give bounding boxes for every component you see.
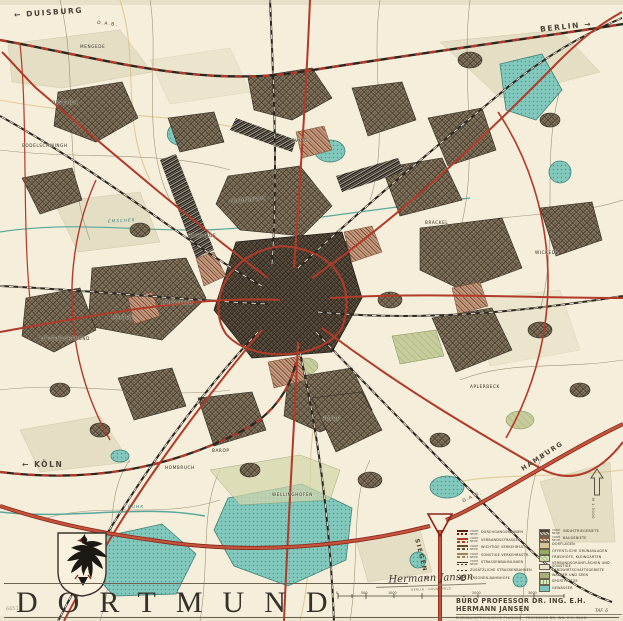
district-label: BODELSCHWINGH: [22, 143, 68, 148]
scale-tick: 0: [336, 591, 338, 595]
legend-swatch-bahnhof: [460, 575, 466, 581]
river-label-ruhr: RUHR: [128, 504, 144, 510]
map-sheet: ← DUISBURG BERLIN → ← KÖLN HAMBURG SIEGE…: [0, 0, 623, 621]
legend: VORH.NEUE DURCHGANGSBAHNEN VORH.NEUE VER…: [457, 529, 621, 592]
north-arrow: M 1:5000: [589, 468, 607, 524]
legend-label: VERBANDSSTRASSEN: [481, 539, 521, 543]
legend-swatch-strassenbahn: [457, 562, 468, 565]
district-label: MARTEN: [112, 315, 133, 320]
legend-swatch-gewaesser: [539, 585, 550, 592]
plate-number: TAF. 6: [595, 609, 608, 614]
map-artwork: [0, 0, 623, 621]
legend-swatch-nebenstrasse: [457, 553, 468, 558]
legend-column-lines: VORH.NEUE DURCHGANGSBAHNEN VORH.NEUE VER…: [457, 529, 535, 592]
legend-swatch-rail: [457, 530, 468, 535]
district-label: MENGEDE: [80, 44, 105, 49]
legend-row: ZUSÄTZLICHE STRASSENBAHNEN: [457, 567, 535, 575]
district-label: HOMBRUCH: [165, 465, 195, 470]
legend-row: VORH.NEUE WICHTIGE VERKEHRSSTR.: [457, 544, 535, 552]
legend-column-areas: VORH.NEUE INDUSTRIEGEBIETE VORH.NEUE BAU…: [539, 529, 621, 592]
district-label: HUCKARDE: [188, 233, 216, 238]
district-label: DORSTFELD: [162, 300, 193, 305]
legend-label: DORFLAGEN: [552, 543, 575, 547]
legend-swatch-hauptstrasse: [457, 545, 468, 550]
district-label: EVING: [292, 138, 308, 143]
legend-swatch-verbandsstrasse: [457, 538, 468, 543]
district-label: LÜTGENDORTMUND: [40, 336, 90, 341]
credit-line-2: EISENBAHNTECHNISCHE PLANUNG · PROFESSOR …: [456, 616, 622, 621]
legend-row: VORH.NEUE SONSTIGE VERKEHRSSTR.: [457, 552, 535, 560]
legend-label: SONSTIGE VERKEHRSSTR.: [481, 554, 529, 558]
legend-swatch-verbandsgruen: [539, 564, 550, 571]
legend-label: SPORTPLÄTZE: [552, 580, 578, 584]
legend-row: VORH.NEUE VERBANDSSTRASSEN: [457, 537, 535, 545]
legend-label: BAUGEBIETE: [563, 537, 587, 541]
legend-label: PERSONEN-BAHNHÖFE: [468, 577, 510, 581]
legend-row: VERBANDSGRÜNFLÄCHEN UND SONSTIGE LANDWIR…: [539, 562, 621, 573]
legend-label: VERBANDSGRÜNFLÄCHEN UND SONSTIGE LANDWIR…: [552, 562, 621, 573]
legend-label: FRIEDHÖFE, KLEINGÄRTEN: [552, 556, 602, 560]
legend-row: VORH.NEUE DURCHGANGSBAHNEN: [457, 529, 535, 537]
north-arrow-label: M 1:5000: [591, 498, 595, 519]
district-label: OESTRICH: [52, 100, 78, 105]
legend-row: PERSONEN-BAHNHÖFE: [457, 575, 535, 583]
legend-label: STRASSENBAHNLINIEN: [481, 561, 523, 565]
legend-label: WICHTIGE VERKEHRSSTR.: [481, 546, 529, 550]
district-label: BAROP: [212, 448, 229, 453]
district-label: APLERBECK: [470, 384, 500, 389]
legend-row: VORH.NEUE STRASSENBAHNLINIEN: [457, 559, 535, 567]
arrow-left-icon: ←: [22, 460, 30, 469]
district-label: BRACKEL: [425, 220, 448, 225]
legend-label: DURCHGANGSBAHNEN: [481, 531, 523, 535]
scale-tick: 500: [361, 591, 367, 595]
district-label: WELLINGHOFEN: [272, 492, 313, 497]
district-label: WICKEDE: [535, 250, 559, 255]
direction-label-koeln: ← KÖLN: [22, 460, 63, 469]
district-label: HÖRDE: [322, 416, 340, 421]
pencil-inventory-number: 6651: [6, 606, 19, 612]
legend-label: ÖFFENTLICHE GRÜNANLAGEN: [552, 550, 607, 554]
legend-label: INDUSTRIEGEBIETE: [563, 530, 599, 534]
legend-label: ZUSÄTZLICHE STRASSENBAHNEN: [470, 569, 532, 573]
arrow-right-icon: →: [584, 19, 593, 29]
legend-label: GEWÄSSER: [552, 587, 573, 591]
legend-row: GEWÄSSER: [539, 585, 621, 592]
arrow-left-icon: ←: [14, 10, 22, 20]
legend-label: WÄLDER UND SEEN: [552, 574, 588, 578]
legend-swatch-zusatz-bahn: [457, 570, 468, 571]
